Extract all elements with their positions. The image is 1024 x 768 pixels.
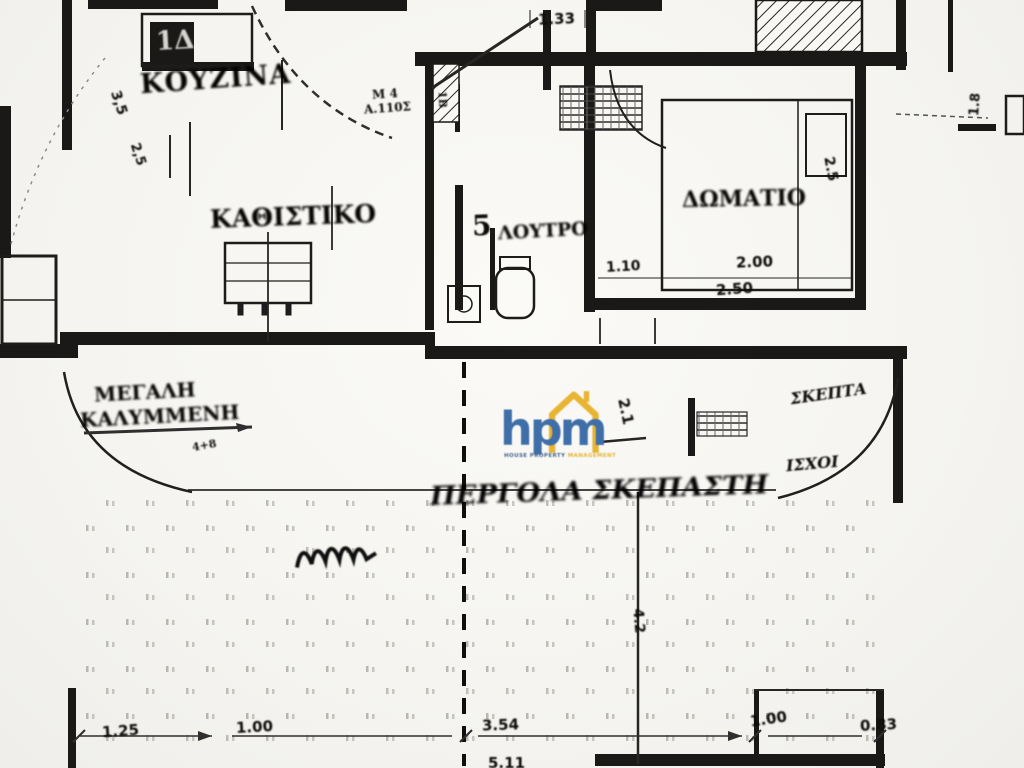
dim-bottom-3: 3.54: [482, 717, 520, 733]
dim-top: 1.33: [538, 11, 576, 27]
dim-top-right: 1.8: [968, 92, 983, 116]
terrace-left-label-line1: ΜΕΓΑΛΗ: [94, 379, 196, 404]
dim-bedroom-right: 2.5: [821, 156, 839, 183]
watermark-tagline: HOUSE PROPERTY MANAGEMENT: [504, 453, 616, 459]
watermark-tagline-accent: MANAGEMENT: [568, 453, 616, 459]
dim-bottom-1: 1.25: [102, 723, 140, 741]
dim-bedroom-2: 2.00: [736, 254, 774, 270]
appliance-label: 1Δ: [155, 25, 195, 57]
terrace-right-label-bottom: ΙΣΧΟΙ: [785, 454, 839, 475]
dim-bottom-5: 0.83: [860, 717, 898, 734]
dim-bottom-sub: 5.11: [488, 756, 525, 768]
dim-terrace-mid: 2.1: [615, 397, 635, 426]
room-label-bedroom: ΔΩΜΑΤΙΟ: [682, 187, 806, 211]
dim-bedroom-1: 1.10: [606, 259, 641, 275]
hall-label-line2: Α.110Σ: [364, 100, 412, 115]
sofa-leg: [238, 303, 243, 315]
dim-bedroom-3: 2.50: [716, 281, 754, 299]
dim-terrace-right: 4.2: [630, 608, 646, 634]
toilet: [496, 268, 534, 318]
watermark-logo: hpm: [500, 402, 605, 456]
hall-label-line1: Μ 4: [372, 87, 399, 101]
right-edge-box: [1006, 96, 1024, 134]
sink: [448, 286, 480, 322]
sofa-leg: [286, 303, 291, 315]
room-label-living: ΚΑΘΙΣΤΙΚΟ: [210, 201, 377, 232]
dim-bottom-2: 1.00: [236, 719, 274, 736]
watermark-tagline-main: HOUSE PROPERTY: [504, 453, 565, 459]
room-label-bathroom: ΛΟΥΤΡΟ: [498, 220, 589, 244]
floor-plan-canvas: ΚΟΥΖΙΝΑ ΚΑΘΙΣΤΙΚΟ ΔΩΜΑΤΙΟ 5 ΛΟΥΤΡΟ Μ 4 Α…: [0, 0, 1024, 768]
room-number-bathroom: 5: [472, 212, 492, 241]
hatched-wall-block: [756, 0, 862, 52]
entrance-door-arc: [10, 58, 105, 248]
terrace-furniture-hatch: [697, 412, 747, 436]
hall-jamb-note: 1Β: [437, 91, 449, 108]
sofa-leg: [262, 303, 267, 315]
terrace-paving-texture: [85, 500, 885, 746]
